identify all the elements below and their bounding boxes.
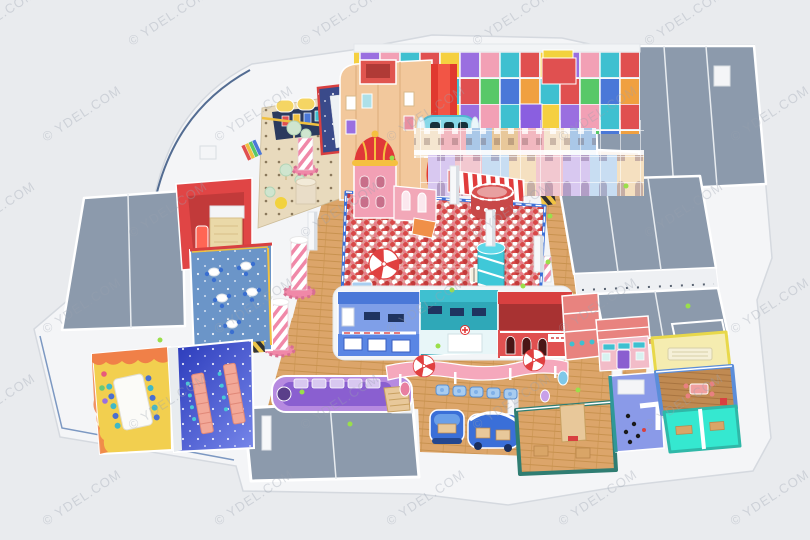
playground-render: Indoor playground park — 3D isometric fl… (0, 0, 810, 540)
balloon (99, 385, 105, 391)
candy-house-door (617, 350, 630, 369)
egg-decor (558, 371, 568, 385)
teal-awning (618, 343, 630, 349)
teal-awning (633, 342, 645, 348)
balloon (102, 398, 108, 404)
clinic-counter (448, 334, 482, 352)
rooftop-unit (200, 146, 216, 159)
playground-render-stage: Indoor playground park — 3D isometric fl… (0, 0, 810, 540)
candy-house (596, 316, 650, 371)
cabinet (618, 380, 644, 394)
cream-cylinder-stool (296, 178, 316, 204)
role-play-street (333, 286, 573, 360)
bench (668, 348, 712, 360)
shelf (342, 308, 354, 326)
castle-slide (412, 218, 436, 238)
rooftop-unit (714, 66, 730, 86)
teal-room (516, 402, 616, 474)
train-face-window (277, 387, 291, 401)
walkway-pillar (262, 416, 271, 450)
yellow-ball (275, 197, 287, 209)
teal-awning (603, 344, 615, 350)
balloon (101, 371, 107, 377)
egg-decor (400, 382, 410, 396)
egg-decor (541, 390, 550, 402)
